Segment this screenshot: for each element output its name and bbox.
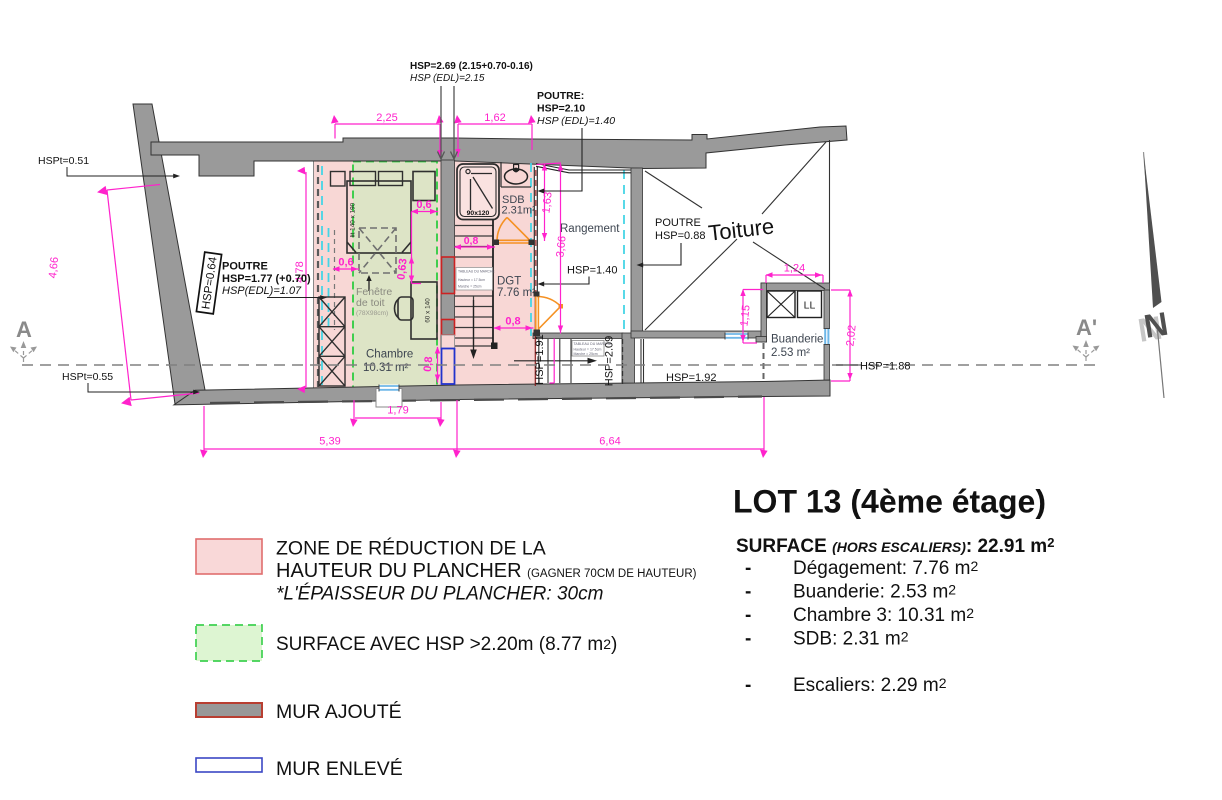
svg-text:10.31 m²: 10.31 m² bbox=[363, 362, 409, 374]
svg-text:HSP=1.88: HSP=1.88 bbox=[860, 361, 910, 373]
svg-text:7.76 m²: 7.76 m² bbox=[497, 287, 536, 299]
svg-text:Marche = 25cm: Marche = 25cm bbox=[574, 352, 598, 356]
svg-text:0,8: 0,8 bbox=[422, 356, 436, 372]
svg-text:HSPt=0.51: HSPt=0.51 bbox=[38, 155, 89, 167]
svg-text:5,39: 5,39 bbox=[319, 436, 340, 448]
svg-text:POUTRE: POUTRE bbox=[655, 217, 701, 229]
svg-text:HSP=2.69 (2.15+0.70-0.16): HSP=2.69 (2.15+0.70-0.16) bbox=[410, 61, 533, 72]
svg-text:HSP (EDL)=1.40: HSP (EDL)=1.40 bbox=[537, 115, 615, 127]
svg-text:HSP=2.09: HSP=2.09 bbox=[604, 336, 616, 386]
svg-text:LL: LL bbox=[804, 300, 816, 312]
svg-text:3,66: 3,66 bbox=[554, 235, 568, 258]
svg-text:-: - bbox=[745, 558, 751, 579]
svg-text:2,25: 2,25 bbox=[376, 112, 397, 124]
svg-text:HSP=0.88: HSP=0.88 bbox=[655, 230, 705, 242]
svg-text:4,66: 4,66 bbox=[47, 256, 61, 279]
svg-text:A: A bbox=[16, 317, 32, 342]
svg-text:0,6: 0,6 bbox=[338, 257, 353, 269]
svg-text:2.53 m²: 2.53 m² bbox=[771, 347, 810, 359]
svg-text:(78X98cm): (78X98cm) bbox=[356, 310, 388, 317]
svg-text:-: - bbox=[745, 629, 751, 650]
svg-text:-: - bbox=[745, 605, 751, 626]
svg-text:1,63: 1,63 bbox=[540, 191, 554, 214]
svg-text:POUTRE: POUTRE bbox=[222, 261, 268, 273]
svg-text:Buanderie: 2.53 m2: Buanderie: 2.53 m2 bbox=[793, 582, 956, 603]
svg-text:MUR ENLEVÉ: MUR ENLEVÉ bbox=[276, 757, 403, 780]
svg-text:90x120: 90x120 bbox=[467, 210, 490, 217]
svg-text:DGT: DGT bbox=[497, 276, 521, 288]
svg-text:SURFACE AVEC HSP >2.20m (8.77: SURFACE AVEC HSP >2.20m (8.77 m2) bbox=[276, 634, 617, 655]
svg-text:1,62: 1,62 bbox=[484, 112, 505, 124]
svg-text:TABLEAU DU MARCHE: TABLEAU DU MARCHE bbox=[458, 270, 495, 274]
svg-text:de toit: de toit bbox=[356, 297, 385, 309]
svg-text:Marche = 25cm: Marche = 25cm bbox=[458, 285, 482, 289]
svg-text:6,64: 6,64 bbox=[599, 436, 620, 448]
svg-text:A': A' bbox=[1076, 315, 1097, 340]
svg-text:0,8: 0,8 bbox=[464, 235, 479, 247]
svg-text:Buanderie: Buanderie bbox=[771, 334, 823, 346]
svg-text:ZONE DE RÉDUCTION DE LA: ZONE DE RÉDUCTION DE LA bbox=[276, 537, 546, 560]
svg-text:1,24: 1,24 bbox=[784, 263, 805, 275]
svg-text:SDB: 2.31 m2: SDB: 2.31 m2 bbox=[793, 629, 909, 650]
svg-text:Hauteur = 17.5cm: Hauteur = 17.5cm bbox=[458, 278, 485, 282]
svg-text:Chambre: Chambre bbox=[366, 349, 413, 361]
svg-text:POUTRE:: POUTRE: bbox=[537, 90, 584, 102]
svg-text:Dégagement: 7.76 m2: Dégagement: 7.76 m2 bbox=[793, 558, 978, 579]
svg-text:0,6: 0,6 bbox=[416, 199, 431, 211]
svg-text:HSP=1.77 (+0.70): HSP=1.77 (+0.70) bbox=[222, 273, 311, 285]
svg-text:Hauteur = 17.5cm: Hauteur = 17.5cm bbox=[574, 348, 602, 352]
svg-text:SURFACE (HORS ESCALIERS): 22.9: SURFACE (HORS ESCALIERS): 22.91 m2 bbox=[736, 535, 1054, 557]
svg-text:0,8: 0,8 bbox=[505, 316, 520, 328]
svg-text:lit 140 x 190: lit 140 x 190 bbox=[350, 202, 357, 237]
svg-text:HSP (EDL)=2.15: HSP (EDL)=2.15 bbox=[410, 73, 485, 84]
svg-text:HSP=1.92: HSP=1.92 bbox=[666, 372, 716, 384]
svg-text:2.31m²: 2.31m² bbox=[502, 205, 537, 217]
svg-text:-: - bbox=[745, 675, 751, 696]
svg-text:Escaliers: 2.29 m2: Escaliers: 2.29 m2 bbox=[793, 675, 947, 696]
svg-text:HSP=2.10: HSP=2.10 bbox=[537, 103, 585, 115]
svg-text:Rangement: Rangement bbox=[560, 223, 620, 235]
svg-text:1,79: 1,79 bbox=[387, 405, 408, 417]
svg-text:HSPt=0.55: HSPt=0.55 bbox=[62, 371, 113, 383]
svg-text:1,15: 1,15 bbox=[738, 304, 752, 327]
svg-text:HSP=1.91: HSP=1.91 bbox=[534, 334, 546, 384]
svg-text:HSP=1.40: HSP=1.40 bbox=[567, 265, 617, 277]
svg-text:MUR AJOUTÉ: MUR AJOUTÉ bbox=[276, 700, 402, 723]
svg-text:Chambre 3: 10.31 m2: Chambre 3: 10.31 m2 bbox=[793, 605, 974, 626]
svg-text:HSP(EDL)=1.07: HSP(EDL)=1.07 bbox=[222, 285, 302, 297]
svg-text:*L'ÉPAISSEUR DU PLANCHER: 30cm: *L'ÉPAISSEUR DU PLANCHER: 30cm bbox=[276, 584, 603, 605]
svg-text:0,63: 0,63 bbox=[395, 258, 409, 281]
svg-text:-: - bbox=[745, 582, 751, 603]
svg-text:2,02: 2,02 bbox=[844, 324, 858, 347]
svg-text:LOT 13 (4ème étage): LOT 13 (4ème étage) bbox=[733, 484, 1046, 520]
svg-text:60 x 140: 60 x 140 bbox=[425, 298, 432, 323]
